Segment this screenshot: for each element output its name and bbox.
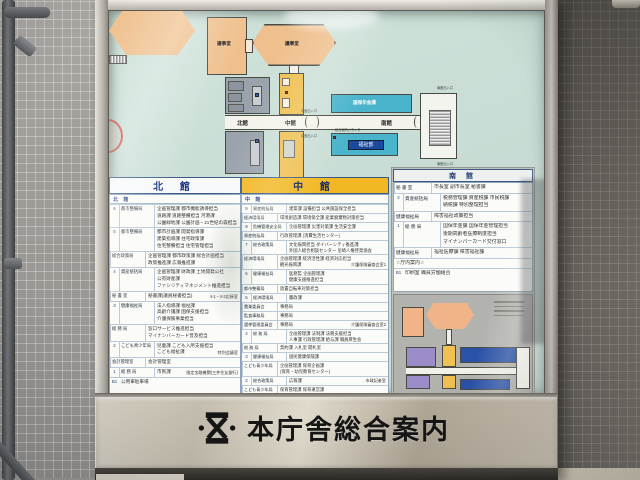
table-row: 1 総 務 局 国保年金課 国保年金管理担当後期高齢者医療制度担当マイナンバーカ… [394, 221, 532, 247]
room-line: 事務局 [280, 313, 386, 319]
room-line: 保育管理課 保育運営課 [280, 387, 386, 393]
south-building-header: 南 館 [393, 169, 533, 182]
center-wing-lower [279, 131, 304, 180]
south-wing-label: 南館 [381, 119, 392, 127]
room-line: 契約課 入札室 開札室 [280, 345, 386, 351]
table-row: 4 総 務 局 企画管理課 法制課 法務支援担当人事課 行政管理課 給与課 職員… [242, 329, 388, 344]
room-line: 国保年金課 国保年金管理担当 [443, 223, 530, 231]
department-name: 健康福祉局 [394, 248, 432, 258]
south-wing-lower-room: 福祉部 [331, 133, 398, 156]
handrail-pipe [2, 0, 15, 480]
department-name: 総合政策局 [110, 252, 146, 268]
department-name: 経済環境局 [242, 255, 278, 269]
table-row: 経済環境局 環境創造課 環境保全課 産業廃棄物対策担当 [242, 213, 388, 222]
mini-assembly-hall [426, 303, 474, 329]
department-detail: 企画管理課 経済活性課 経済対応担当観光振興課 介護保険審査会室1 [278, 255, 388, 269]
tile-grid [0, 0, 100, 478]
room-line: 行政管理課 (消費生活センター) [280, 233, 386, 239]
mini-stem [446, 329, 452, 345]
mini-south-upper [460, 347, 516, 363]
table-row: 秘 書 室 秘書課(議員秘書担当) 4-1・4-2応接室 [110, 291, 240, 301]
north-wing-label: 北館 [237, 119, 248, 127]
table-row: 2 こども青少年局 児童課 こども入所支援担当こども福祉課 特別会議室 [110, 341, 240, 358]
floor-number: B1 [394, 269, 403, 279]
mini-floor-plan [393, 294, 533, 394]
table-row: 6 健康福祉局 医務監 企画管理課健康支援推進担当 [242, 269, 388, 284]
room-line: 都市計画課 開発指導課 [157, 229, 238, 236]
insurance-room-label: 国保年金課 [353, 100, 376, 106]
department-detail: 企画管理課 都市機能誘導担当道路課 道路整備担当 河港課公園緑地課 公園計画・2… [155, 205, 240, 227]
department-detail: 法人指導課 福祉課高齢介護課 国保支援担当介護保険事業担当 [155, 302, 240, 324]
department-detail: 契約課 入札室 開札室 [278, 344, 388, 352]
room-line: 農政課 [289, 295, 386, 301]
department-detail: 事務局 [278, 312, 388, 320]
south-directory-table: 秘 書 室 市長室 副市長室 秘書課 2 資産統括局 税務管理課 資産税課 市民… [393, 182, 533, 292]
elevator-icon [255, 139, 259, 143]
room-line: 会計管理室 [148, 359, 238, 366]
floor-number: 1 [110, 368, 119, 377]
department-name: こども青少年局 [119, 342, 155, 358]
room-line: 環境創造課 環境保全課 産業廃棄物対策担当 [280, 215, 386, 221]
table-row: 選挙管理委員会 事務局 介護保険審査会室2 [242, 320, 388, 329]
right-tile-wall [556, 0, 640, 470]
mini-north-upper [406, 347, 436, 367]
center-directory-table: 中 館 9 資産統括局 建築課 設備担当 公共施設保全担当 経済環境局 環境創造… [241, 194, 389, 394]
floor-number: 4 [110, 268, 119, 290]
table-row: 2 資産統括局 税務管理課 資産税課 市民税課納税課 特別整理担当 [394, 193, 532, 211]
east-hall [420, 93, 457, 159]
table-row: 監査事務局 事務局 [242, 311, 388, 320]
table-row: 秘 書 室 市長室 副市長室 秘書課 [394, 183, 532, 193]
department-name: 総合政策局 [251, 241, 287, 255]
floor-number: 2 [394, 194, 403, 211]
floor-number: 9 [242, 205, 251, 213]
table-row: 1 総 務 局 市民課 指定金融機関(三井住友銀行) [110, 367, 240, 377]
photo-of-building-directory-board: 議事堂 議事堂 国保年金課 福祉部 北館 [0, 0, 640, 480]
city-emblem-icon [198, 409, 236, 447]
department-detail: 事務局 [278, 303, 388, 311]
department-name: 総合政策局 [251, 377, 287, 385]
department-name: こども青少年局 [242, 362, 278, 376]
room-line: 企画管理課 財政課 土地開発公社 [157, 269, 238, 276]
department-detail: 秘書課(議員秘書担当) 4-1・4-2応接室 [146, 292, 240, 301]
room-note: 特別会議室 [218, 350, 238, 356]
mini-corridor [406, 367, 522, 375]
room-line: 企画管理課 都市政策課 総合計画担当 [148, 253, 238, 260]
counter-label: 総合案内カウンター [335, 127, 364, 132]
department-detail: 市民課 指定金融機関(三井住友銀行) [155, 368, 240, 377]
room-note: 指定金融機関(三井住友銀行) [186, 370, 238, 376]
room-line: 印刷室 職員労働組合 [405, 270, 530, 278]
room-line: 後期高齢者医療制度担当 [443, 231, 530, 239]
department-name: 資産統括局 [242, 232, 278, 240]
room-line: 納税課 特別整理担当 [443, 202, 530, 210]
department-detail: 国保年金課 国保年金管理担当後期高齢者医療制度担当マイナンバーカード交付窓口 [441, 222, 532, 247]
department-detail: 印刷室 職員労働組合 [403, 269, 532, 279]
handrail-bracket [4, 258, 22, 269]
handrail-pipe-top [4, 7, 50, 18]
department-name: 総 務 局 [242, 344, 278, 352]
mini-center-lower [442, 375, 456, 389]
floor-number: 5 [242, 294, 251, 302]
table-row: B1 印刷室 職員労働組合 [394, 268, 532, 279]
department-name: 監査事務局 [242, 312, 278, 320]
room-line: 児童課 こども入所支援担当 [157, 343, 238, 350]
department-name: 総 務 局 [110, 325, 146, 341]
room-line: 人事課 行政管理課 給与課 職員厚生会 [289, 337, 386, 343]
entrance-arc [305, 116, 311, 128]
department-name: 秘 書 室 [110, 292, 146, 301]
department-detail: 障害福祉政策担当 [432, 212, 532, 222]
department-name: 都市整備局 [242, 285, 278, 293]
department-name: 健康福祉局 [251, 270, 287, 284]
department-detail: 医務監 企画管理課健康支援推進担当 [287, 270, 388, 284]
department-detail: 税務管理課 資産税課 市民税課納税課 特別整理担当 [441, 194, 532, 211]
room-line: 外国人総合相談センター 尼崎人権啓発協会 [289, 248, 386, 254]
department-detail: 建築課 設備担当 公共施設保全担当 [287, 205, 388, 213]
department-detail: 企画管理課 財政課 土地開発公社公有財産課ファシリティマネジメント推進担当 [155, 268, 240, 290]
room-line: 高齢介護課 国保支援担当 [157, 309, 238, 316]
department-name: 健康福祉局 [119, 302, 155, 324]
floor-number: 2 [242, 377, 251, 385]
room-line: ☆庁内案内☆ [396, 260, 530, 268]
department-name: 総 務 局 [119, 368, 155, 377]
entrance-label: 南館出入口 [437, 85, 453, 90]
room-line: 道路課 道路整備担当 河港課 [157, 213, 238, 220]
center-table-subheader: 中 館 [242, 195, 388, 204]
table-row: 9 資産統括局 建築課 設備担当 公共施設保全担当 [242, 204, 388, 213]
table-row: 総合政策局 企画管理課 都市政策課 総合計画担当政策推進課 広報推進課 [110, 251, 240, 268]
floor-number: 1 [394, 222, 403, 247]
board-title: 本庁舎総合案内 [247, 408, 450, 447]
north-wing-lower [225, 131, 264, 174]
nameplate-title-row: 本庁舎総合案内 [198, 408, 450, 447]
table-row: B1 公用車駐車場 [110, 377, 240, 387]
department-name: 資産統括局 [251, 205, 287, 213]
center-wing-label: 中館 [285, 119, 296, 127]
table-row: 5 経済環境局 農政課 [242, 293, 388, 302]
floor-number: 3 [242, 353, 251, 361]
department-detail: 福祉医療課 障害福祉課 [432, 248, 532, 258]
department-detail: 企画管理課 災害対策課 生活安全課 [287, 223, 388, 231]
elevator-icon [255, 93, 259, 97]
department-detail: 放置自転車対策担当 [278, 285, 388, 293]
mini-map-legend [494, 301, 524, 319]
department-detail: 企画管理課 保育企画課(保育・幼児教育センター) [278, 362, 388, 376]
room-line: 住宅整備担当 住宅管理担当 [157, 243, 238, 250]
room-line: 税務管理課 資産税課 市民税課 [443, 195, 530, 203]
mini-center-upper [442, 345, 456, 367]
left-tile-wall [0, 0, 100, 478]
assembly-hall [109, 11, 195, 55]
room-line: 政策推進課 広報推進課 [148, 260, 238, 267]
department-name: 都市整備局 [119, 205, 155, 227]
room-line: 放置自転車対策担当 [280, 286, 386, 292]
table-row: 7 総合政策局 文化振興担当 ダイバーシティ推進課外国人総合相談センター 尼崎人… [242, 240, 388, 255]
room-line: (保育・幼児教育センター) [280, 369, 386, 375]
table-row: こども青少年局 企画管理課 保育企画課(保育・幼児教育センター) [242, 361, 388, 376]
department-name: 総 務 局 [251, 330, 287, 344]
room-note: 介護保険審査会室1 [351, 262, 386, 268]
room-note: 4-1・4-2応接室 [210, 294, 238, 300]
department-name: 秘 書 室 [394, 183, 432, 193]
department-detail: 公用車駐車場 [119, 378, 240, 387]
department-detail: 会計管理室 [146, 358, 240, 367]
department-detail: 広報課 市政記者室 [287, 377, 388, 385]
entrance-label: 中館出入口 [301, 108, 317, 113]
floor-number: 8 [242, 223, 251, 231]
table-row: 総 務 局 窓口サービス推進担当マイナンバーカード普及担当 [110, 324, 240, 341]
info-icon [333, 136, 336, 139]
north-building-header: 北 館 [109, 177, 241, 194]
mini-assembly-annex [402, 307, 424, 337]
table-row: 8 危機管理安全局 企画管理課 災害対策課 生活安全課 [242, 222, 388, 231]
board-glass: 議事堂 議事堂 国保年金課 福祉部 北館 [108, 10, 545, 394]
department-name: 危機管理安全局 [251, 223, 287, 231]
department-name: 総 務 局 [403, 222, 441, 247]
entrance-arc [414, 116, 420, 128]
escalator-icon [109, 55, 127, 64]
table-row: 農業委員会 事務局 [242, 302, 388, 311]
room-line: 障害福祉政策担当 [434, 213, 530, 221]
department-name: 選挙管理委員会 [242, 321, 278, 329]
table-row: 2 総合政策局 広報課 市政記者室 [242, 376, 388, 385]
department-detail: 農政課 [287, 294, 388, 302]
floor-number: 3 [110, 302, 119, 324]
room-line: マイナンバーカード交付窓口 [443, 239, 530, 247]
floor-number: 2 [110, 342, 119, 358]
table-row: 健康福祉局 福祉医療課 障害福祉課 [394, 247, 532, 258]
department-detail: 児童課 こども入所支援担当こども福祉課 特別会議室 [155, 342, 240, 358]
department-detail: 環境創造課 環境保全課 産業廃棄物対策担当 [278, 214, 388, 222]
floor-number: 5 [110, 228, 119, 250]
room-line: ファシリティマネジメント推進担当 [157, 283, 238, 290]
table-row: 会計管理室 会計管理室 [110, 357, 240, 367]
table-row: 資産統括局 行政管理課 (消費生活センター) [242, 231, 388, 240]
floor-number: 6 [110, 205, 119, 227]
table-row: 6 都市整備局 企画管理課 都市機能誘導担当道路課 道路整備担当 河港課公園緑地… [110, 204, 240, 227]
room-line: 建築指導課 住宅政策課 [157, 236, 238, 243]
center-building-header: 中 館 [241, 177, 389, 194]
table-row: 健康福祉局 障害福祉政策担当 [394, 211, 532, 222]
department-detail: 文化振興担当 ダイバーシティ推進課外国人総合相談センター 尼崎人権啓発協会 [287, 241, 388, 255]
wall-shadow [556, 0, 640, 470]
table-row: 3 健康福祉局 法人指導課 福祉課高齢介護課 国保支援担当介護保険事業担当 [110, 301, 240, 324]
department-name: 都市整備局 [119, 228, 155, 250]
room-line: 建築課 設備担当 公共施設保全担当 [289, 206, 386, 212]
table-row: 都市整備局 放置自転車対策担当 [242, 284, 388, 293]
department-name: 資産統括局 [119, 268, 155, 290]
department-detail: 国民健康保険課 [287, 353, 388, 361]
info-icon [285, 91, 288, 94]
department-detail: 行政管理課 (消費生活センター) [278, 232, 388, 240]
department-name: 農業委員会 [242, 303, 278, 311]
stairs-icon [429, 110, 451, 146]
room-line: 健康支援推進担当 [289, 277, 386, 283]
room-line: 事務局 [280, 304, 386, 310]
welfare-room-label: 福祉部 [348, 140, 384, 150]
mini-east-hall [516, 347, 530, 389]
floor-number: 6 [242, 270, 251, 284]
room-line: 公有財産課 [157, 276, 238, 283]
floor-number: 7 [242, 241, 251, 255]
table-row: 経済環境局 企画管理課 経済活性課 経済対応担当観光振興課 介護保険審査会室1 [242, 254, 388, 269]
department-detail: ☆庁内案内☆ [394, 259, 532, 269]
room-line: 窓口サービス推進担当 [148, 326, 238, 333]
department-detail: 事務局 介護保険審査会室2 [278, 321, 388, 329]
metal-fitting [612, 0, 640, 8]
department-name: 健康福祉局 [251, 353, 287, 361]
department-name: 経済環境局 [242, 214, 278, 222]
entrance-label: 中館出入口 [301, 133, 317, 138]
room-note: 市政記者室 [366, 378, 386, 384]
assembly-annex-label: 議事堂 [217, 41, 231, 47]
floor-number: 4 [242, 330, 251, 344]
room-note: 介護保険審査会室2 [351, 322, 386, 328]
assembly-hall-label: 議事堂 [285, 41, 299, 47]
north-directory-table: 北 館 6 都市整備局 企画管理課 都市機能誘導担当道路課 道路整備担当 河港課… [109, 194, 241, 394]
north-table-subheader: 北 館 [110, 195, 240, 204]
table-row: 5 都市整備局 都市計画課 開発指導課建築指導課 住宅政策課住宅整備担当 住宅管… [110, 227, 240, 250]
department-detail: 市長室 副市長室 秘書課 [432, 183, 532, 193]
room-line: 福祉医療課 障害福祉課 [434, 249, 530, 257]
entrance-label: 南館出入口 [437, 161, 453, 166]
department-detail: 窓口サービス推進担当マイナンバーカード普及担当 [146, 325, 240, 341]
room-line: 企画管理課 都市機能誘導担当 [157, 206, 238, 213]
floor-strip [556, 468, 640, 480]
department-name: 会計管理室 [110, 358, 146, 367]
room-line: 介護保険事業担当 [157, 316, 238, 323]
room-line: 企画管理課 災害対策課 生活安全課 [289, 224, 386, 230]
room-line: 法人指導課 福祉課 [157, 303, 238, 310]
department-name: 経済環境局 [251, 294, 287, 302]
mini-south-lower [460, 379, 510, 390]
table-row: 4 資産統括局 企画管理課 財政課 土地開発公社公有財産課ファシリティマネジメン… [110, 267, 240, 290]
room-line: 公用車駐車場 [121, 379, 238, 386]
entrance-arc [313, 116, 319, 128]
department-name: 資産統括局 [403, 194, 441, 211]
plan-connector [245, 39, 253, 53]
floor-number: B1 [110, 378, 119, 387]
table-row: 3 健康福祉局 国民健康保険課 [242, 352, 388, 361]
room-line: 公園緑地課 公園計画・21世紀の森担当 [157, 220, 238, 227]
red-stamp-mark [108, 119, 123, 153]
floor-strip [96, 474, 184, 480]
room-line: 国民健康保険課 [289, 354, 386, 360]
room-line: マイナンバーカード普及担当 [148, 333, 238, 340]
room-line: 市長室 副市長室 秘書課 [434, 184, 530, 192]
table-row: 総 務 局 契約課 入札室 開札室 [242, 343, 388, 352]
north-wing-upper [225, 77, 270, 114]
department-name: 健康福祉局 [394, 212, 432, 222]
department-detail: 企画管理課 都市政策課 総合計画担当政策推進課 広報推進課 [146, 252, 240, 268]
department-detail: 都市計画課 開発指導課建築指導課 住宅政策課住宅整備担当 住宅管理担当 [155, 228, 240, 250]
table-row: ☆庁内案内☆ [394, 258, 532, 269]
mini-north-lower [406, 375, 430, 389]
department-detail: 企画管理課 法制課 法務支援担当人事課 行政管理課 給与課 職員厚生会 [287, 330, 388, 344]
board-frame-top [95, 0, 558, 10]
